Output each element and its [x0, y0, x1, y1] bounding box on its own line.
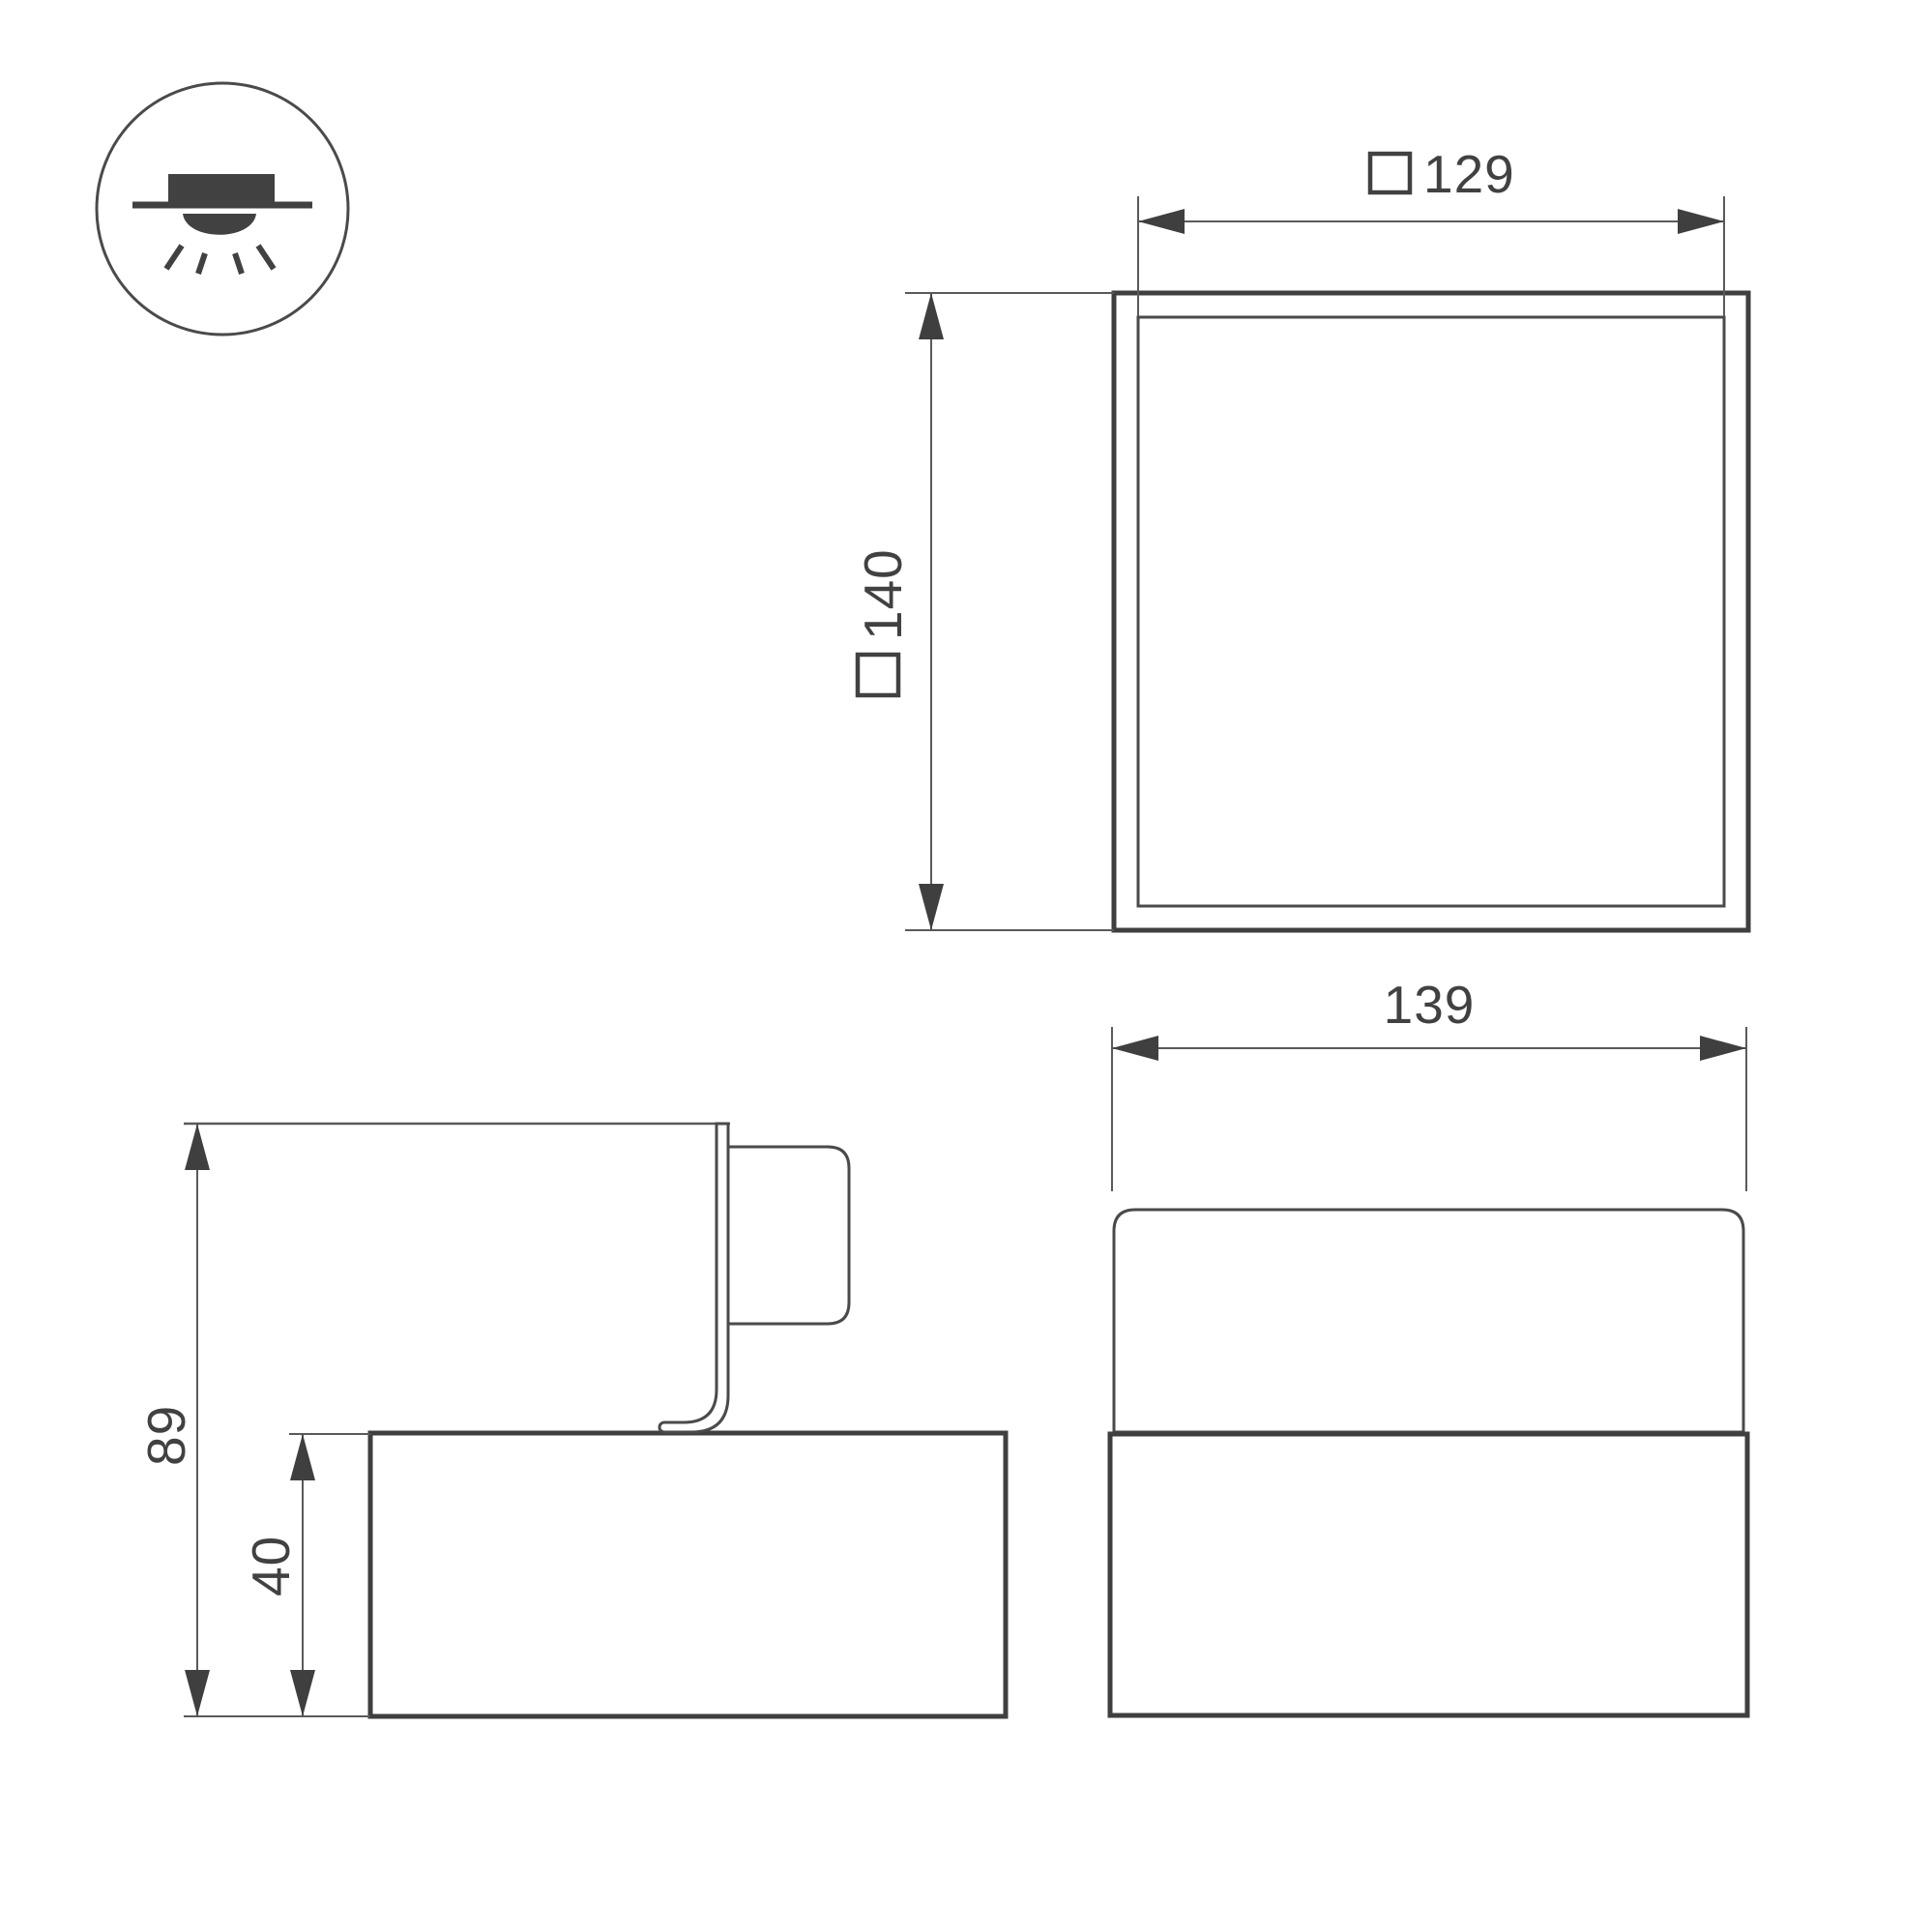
- arrowhead-down-icon: [919, 884, 944, 930]
- arrowhead-right-icon: [1678, 209, 1724, 234]
- dimension-label: 89: [136, 1405, 196, 1466]
- arrowhead-up-icon: [185, 1124, 210, 1170]
- side-view-base: [370, 1433, 1006, 1716]
- dimension-label: 140: [853, 548, 913, 640]
- drawing-svg: 129 140 89 40: [0, 0, 1932, 1932]
- driver-box: [728, 1147, 849, 1324]
- dimension-89: 89: [136, 1124, 370, 1716]
- square-dimension-symbol: [858, 655, 898, 695]
- top-view-inner-square: [1138, 317, 1724, 906]
- fixture-body-icon: [168, 174, 275, 203]
- top-view: [1114, 293, 1748, 930]
- front-view: [1110, 1210, 1747, 1715]
- dimension-139: 139: [1112, 975, 1746, 1191]
- arrowhead-up-icon: [290, 1434, 315, 1480]
- front-view-shade: [1114, 1210, 1743, 1432]
- mount-type-icon: [97, 83, 348, 335]
- arrowhead-down-icon: [185, 1670, 210, 1716]
- dimension-40: 40: [241, 1434, 370, 1716]
- dimension-label: 129: [1423, 144, 1515, 204]
- arrowhead-up-icon: [919, 293, 944, 339]
- arrowhead-left-icon: [1138, 209, 1185, 234]
- dimension-129: 129: [1138, 144, 1724, 316]
- technical-drawing-page: 129 140 89 40: [0, 0, 1932, 1932]
- square-dimension-symbol: [1370, 154, 1410, 192]
- dimension-label: 139: [1384, 975, 1476, 1035]
- arrowhead-left-icon: [1112, 1036, 1158, 1061]
- front-view-base: [1110, 1434, 1747, 1715]
- arrowhead-right-icon: [1700, 1036, 1746, 1061]
- dimension-label: 40: [241, 1536, 301, 1596]
- dimension-140: 140: [853, 293, 1114, 930]
- icon-circle: [97, 83, 348, 335]
- side-view: [184, 1124, 1006, 1716]
- arrowhead-down-icon: [290, 1670, 315, 1716]
- mounting-bracket: [659, 1124, 728, 1432]
